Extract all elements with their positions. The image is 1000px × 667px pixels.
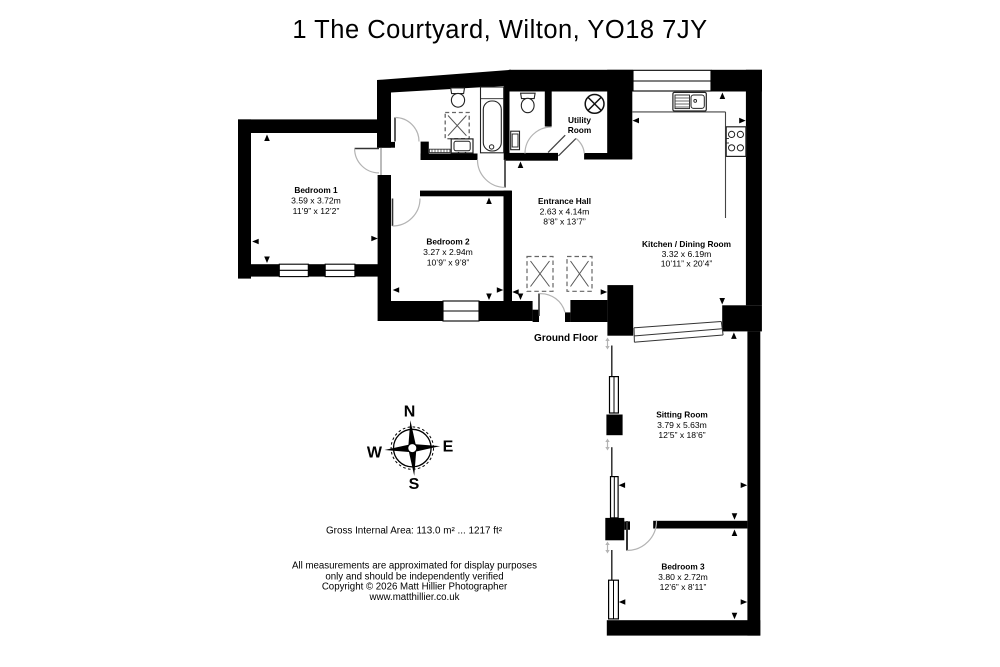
svg-text:Bedroom 2: Bedroom 2 <box>426 237 470 247</box>
svg-text:Gross Internal Area: 113.0 m²: Gross Internal Area: 113.0 m² ... 1217 f… <box>326 526 503 537</box>
svg-text:Bedroom 1: Bedroom 1 <box>294 185 338 195</box>
svg-text:11’9” x 12’2”: 11’9” x 12’2” <box>293 206 340 216</box>
svg-text:Ground Floor: Ground Floor <box>534 333 598 344</box>
svg-text:www.matthillier.co.uk: www.matthillier.co.uk <box>369 592 460 603</box>
svg-text:1 The Courtyard, Wilton, YO18: 1 The Courtyard, Wilton, YO18 7JY <box>292 16 707 44</box>
svg-text:10’11” x 20’4”: 10’11” x 20’4” <box>661 259 713 269</box>
svg-text:Entrance Hall: Entrance Hall <box>538 196 591 206</box>
svg-text:Kitchen / Dining Room: Kitchen / Dining Room <box>642 239 731 249</box>
svg-text:W: W <box>367 445 383 462</box>
svg-text:Bedroom 3: Bedroom 3 <box>661 562 705 572</box>
svg-text:12’6” x 8’11”: 12’6” x 8’11” <box>660 582 707 592</box>
svg-text:Copyright © 2026 Matt Hillier: Copyright © 2026 Matt Hillier Photograph… <box>322 582 508 593</box>
svg-text:Room: Room <box>568 125 592 135</box>
svg-text:12’5” x 18’6”: 12’5” x 18’6” <box>658 430 705 440</box>
svg-text:Utility: Utility <box>568 115 591 125</box>
svg-text:2.63 x 4.14m: 2.63 x 4.14m <box>540 206 590 216</box>
svg-text:8’8” x 13’7”: 8’8” x 13’7” <box>543 217 586 227</box>
svg-text:3.59 x 3.72m: 3.59 x 3.72m <box>291 196 341 206</box>
svg-text:3.32 x 6.19m: 3.32 x 6.19m <box>662 249 712 259</box>
svg-text:Sitting Room: Sitting Room <box>656 410 708 420</box>
svg-text:3.79 x 5.63m: 3.79 x 5.63m <box>657 420 707 430</box>
svg-text:S: S <box>409 476 420 493</box>
svg-text:3.27 x 2.94m: 3.27 x 2.94m <box>423 247 473 257</box>
svg-text:3.80 x 2.72m: 3.80 x 2.72m <box>658 572 708 582</box>
svg-text:All measurements are approxima: All measurements are approximated for di… <box>292 561 537 572</box>
svg-text:10’9” x 9’8”: 10’9” x 9’8” <box>427 257 470 267</box>
svg-text:E: E <box>443 438 454 455</box>
svg-text:N: N <box>404 403 416 420</box>
